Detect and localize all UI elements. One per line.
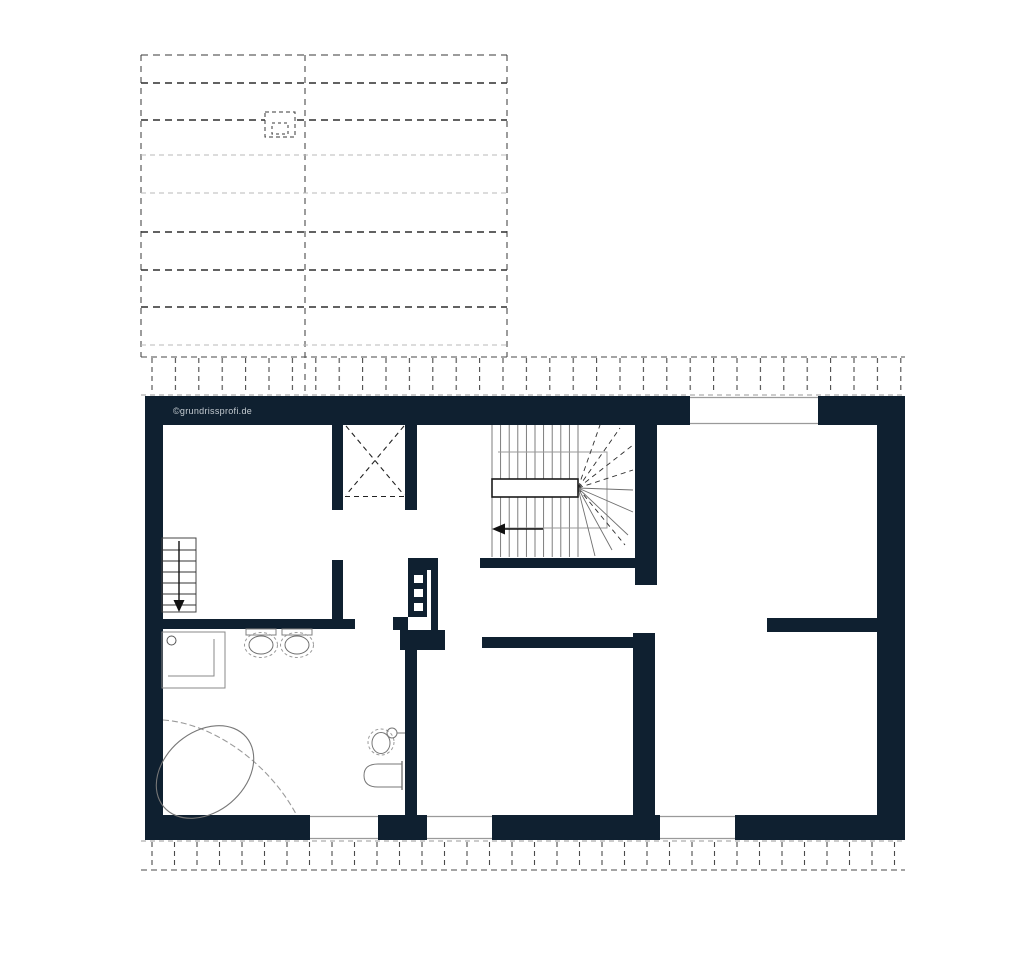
window-opening	[660, 815, 735, 840]
wall	[145, 815, 310, 840]
wall	[332, 424, 343, 510]
chimney-shaft	[345, 426, 405, 497]
eaves-band-bottom	[141, 841, 905, 870]
wall	[480, 558, 635, 568]
washbasins	[245, 629, 314, 658]
wall	[633, 633, 655, 840]
shower-drain	[167, 636, 176, 645]
shower	[162, 632, 225, 688]
wall	[635, 424, 657, 585]
roof-plan-overlay	[141, 55, 507, 395]
roof-chimney-box	[265, 112, 295, 137]
wall	[378, 815, 427, 840]
wc	[364, 728, 405, 790]
watermark: ©grundrissprofi.de	[173, 406, 252, 416]
window-opening	[427, 815, 492, 840]
wall	[735, 815, 905, 840]
washbasin	[281, 629, 314, 658]
wall	[877, 396, 905, 840]
walls	[145, 396, 905, 840]
wall	[145, 396, 163, 840]
eaves-band-top	[141, 357, 905, 395]
wall	[147, 619, 355, 629]
wall	[332, 560, 343, 619]
washbasin	[245, 629, 278, 658]
floor-plan-page: ©grundrissprofi.de	[0, 0, 1024, 974]
wall	[767, 618, 878, 632]
window-opening	[310, 815, 378, 840]
toilet	[364, 761, 402, 790]
bathtub-surround	[163, 720, 296, 814]
wall	[482, 637, 633, 648]
stair-down-arrow	[174, 541, 185, 612]
floor-plan-canvas: ©grundrissprofi.de	[0, 0, 1024, 974]
secondary-staircase	[162, 538, 196, 612]
installation-wall	[393, 558, 445, 815]
main-staircase	[492, 425, 633, 557]
windows	[310, 396, 818, 840]
round-basin	[368, 728, 405, 755]
window-opening	[690, 396, 818, 425]
stair-landing	[492, 479, 578, 497]
wall	[405, 424, 417, 510]
